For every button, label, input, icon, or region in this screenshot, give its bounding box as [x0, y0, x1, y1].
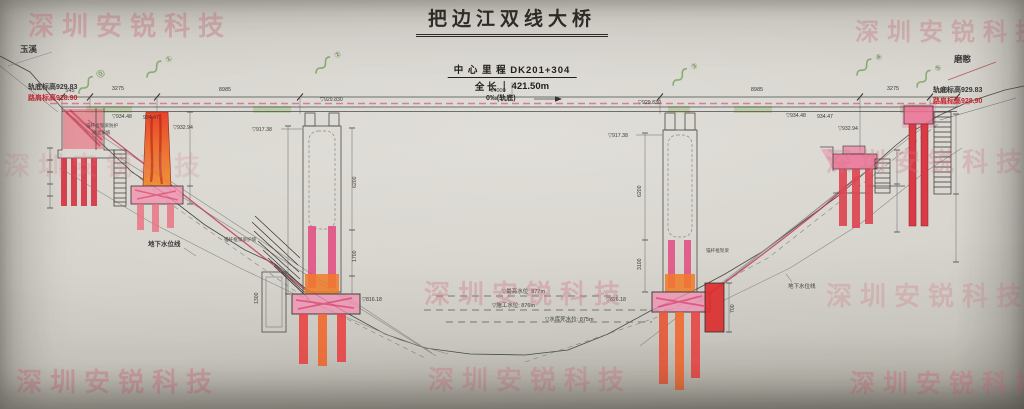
center-mileage-row: 中 心 里 程 DK201+304	[448, 62, 577, 78]
right-direction-leader	[948, 62, 996, 80]
abutment-right	[902, 104, 959, 262]
label-direction-right: 磨憨	[953, 54, 972, 64]
total-length-label: 全 长	[475, 79, 497, 93]
center-mileage-value: DK201+304	[510, 65, 570, 76]
dim-3275-right: 3275	[887, 86, 899, 92]
svg-text:⑤: ⑤	[933, 62, 944, 73]
label-water-high: ▽最高水位: 877m	[502, 287, 545, 295]
green-mark-4: ④	[853, 52, 885, 77]
elev-pier2-top: ▽917.38	[252, 127, 272, 133]
elev-pier3-base: ▽826.18	[606, 297, 626, 303]
note-anchor-right: 锚杆框架梁	[706, 247, 729, 254]
svg-text:③: ③	[689, 61, 700, 72]
pier-4	[820, 146, 900, 232]
note-anchor-left: 锚杆框架梁防护	[86, 122, 119, 129]
vdim-pier3-lower: 3100	[637, 258, 643, 270]
gradient-note: 0‰(轨底)	[486, 93, 516, 103]
label-water-construction: ▽施工水位: 876m	[492, 301, 535, 309]
green-mark-1: ①	[143, 54, 175, 79]
svg-text:①: ①	[164, 54, 175, 65]
note-anchor-mid: 锚杆框架梁护坡	[224, 236, 257, 243]
pier-2	[262, 113, 360, 366]
bridge-deck	[50, 104, 975, 114]
elev-deck-8: ▽932.94	[838, 126, 858, 132]
vdim-pier2-lower: 1700	[352, 250, 358, 262]
svg-text:②: ②	[332, 49, 343, 60]
total-length-row: 全 长 421.50m	[448, 78, 577, 93]
vdim-pier3-upper: 6200	[637, 185, 643, 197]
dim-8985-right: 8985	[751, 87, 763, 93]
green-mark-5: ⑤	[912, 62, 943, 88]
vdim-pier2-box: 1300	[254, 292, 260, 304]
table-divider	[504, 81, 505, 92]
bridge-elevation-drawing-photo: 545 3275 8985 14000 8985 3275 545	[0, 0, 1024, 409]
svg-text:⓪: ⓪	[94, 67, 106, 80]
label-groundwater-left: 地下水位线	[148, 239, 181, 248]
svg-text:④: ④	[874, 52, 885, 63]
label-groundwater-right: 地下水位线	[788, 282, 816, 290]
center-info-table: 中 心 里 程 DK201+304 全 长 421.50m	[448, 62, 577, 93]
drawing-title: 把边江双线大桥	[416, 4, 608, 37]
vdim-right-wall: 700	[730, 304, 736, 313]
label-water-dead: ▽水库死水位: 875m	[545, 315, 594, 323]
elev-pier3-top: ▽917.38	[608, 133, 628, 139]
note-spray: 喷混护坡	[92, 129, 111, 136]
label-rail-elev-left: 轨底标高929.83	[28, 82, 78, 91]
elev-deck-7: 934.47	[817, 114, 833, 120]
vdim-pier2-upper: 6200	[352, 176, 358, 188]
green-mark-0: ⓪	[74, 67, 107, 94]
elev-deck-5: ▽929.830	[638, 100, 661, 106]
dim-3275-left: 3275	[112, 86, 124, 92]
elev-deck-3: ▽932.94	[173, 125, 193, 131]
elev-pier2-base: ▽816.18	[362, 297, 382, 303]
dim-8985-left: 8985	[219, 87, 231, 93]
label-rail-elev-right: 轨底标高929.83	[933, 85, 983, 94]
elev-deck-4: ▽929.830	[320, 97, 343, 103]
label-shoulder-elev-right: 路肩标高928.90	[933, 96, 983, 105]
elev-deck-6: ▽934.48	[786, 113, 806, 119]
elev-deck-2: 934.47	[143, 115, 159, 121]
green-mark-2: ②	[312, 49, 344, 74]
elev-deck-1: ▽934.48	[112, 114, 132, 120]
label-direction-left: 玉溪	[20, 44, 38, 54]
label-shoulder-elev-left: 路肩标高928.90	[28, 93, 78, 102]
center-mileage-label: 中 心 里 程	[454, 65, 507, 76]
left-direction-leader	[8, 52, 52, 66]
green-mark-3: ③	[669, 61, 700, 87]
total-length-value: 421.50m	[512, 81, 550, 92]
